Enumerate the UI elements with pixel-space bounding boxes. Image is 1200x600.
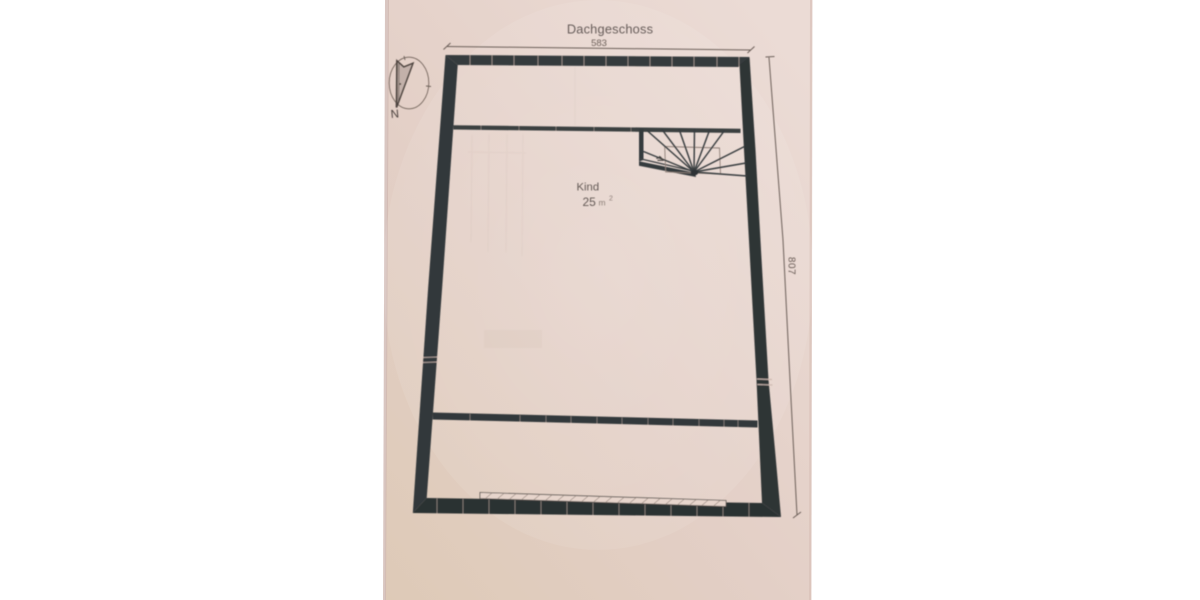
svg-text:2: 2 bbox=[609, 196, 613, 203]
svg-text:m: m bbox=[599, 198, 606, 208]
svg-text:25: 25 bbox=[583, 195, 597, 209]
svg-text:N: N bbox=[390, 108, 399, 121]
svg-text:Kind: Kind bbox=[577, 182, 600, 194]
svg-text:807: 807 bbox=[786, 257, 797, 275]
svg-text:Dachgeschoss: Dachgeschoss bbox=[567, 22, 653, 37]
svg-text:583: 583 bbox=[591, 38, 607, 49]
